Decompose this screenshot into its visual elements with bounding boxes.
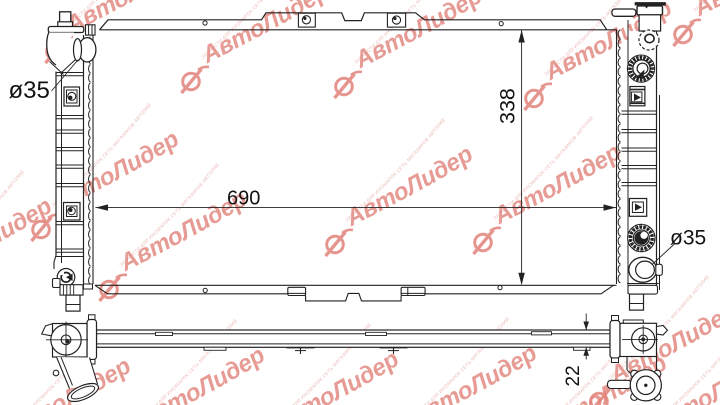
svg-text:22: 22 [563, 365, 584, 386]
svg-text:690: 690 [227, 188, 260, 210]
svg-text:338: 338 [496, 88, 520, 124]
svg-text:ø35: ø35 [670, 227, 706, 250]
svg-text:ø35: ø35 [9, 77, 50, 104]
